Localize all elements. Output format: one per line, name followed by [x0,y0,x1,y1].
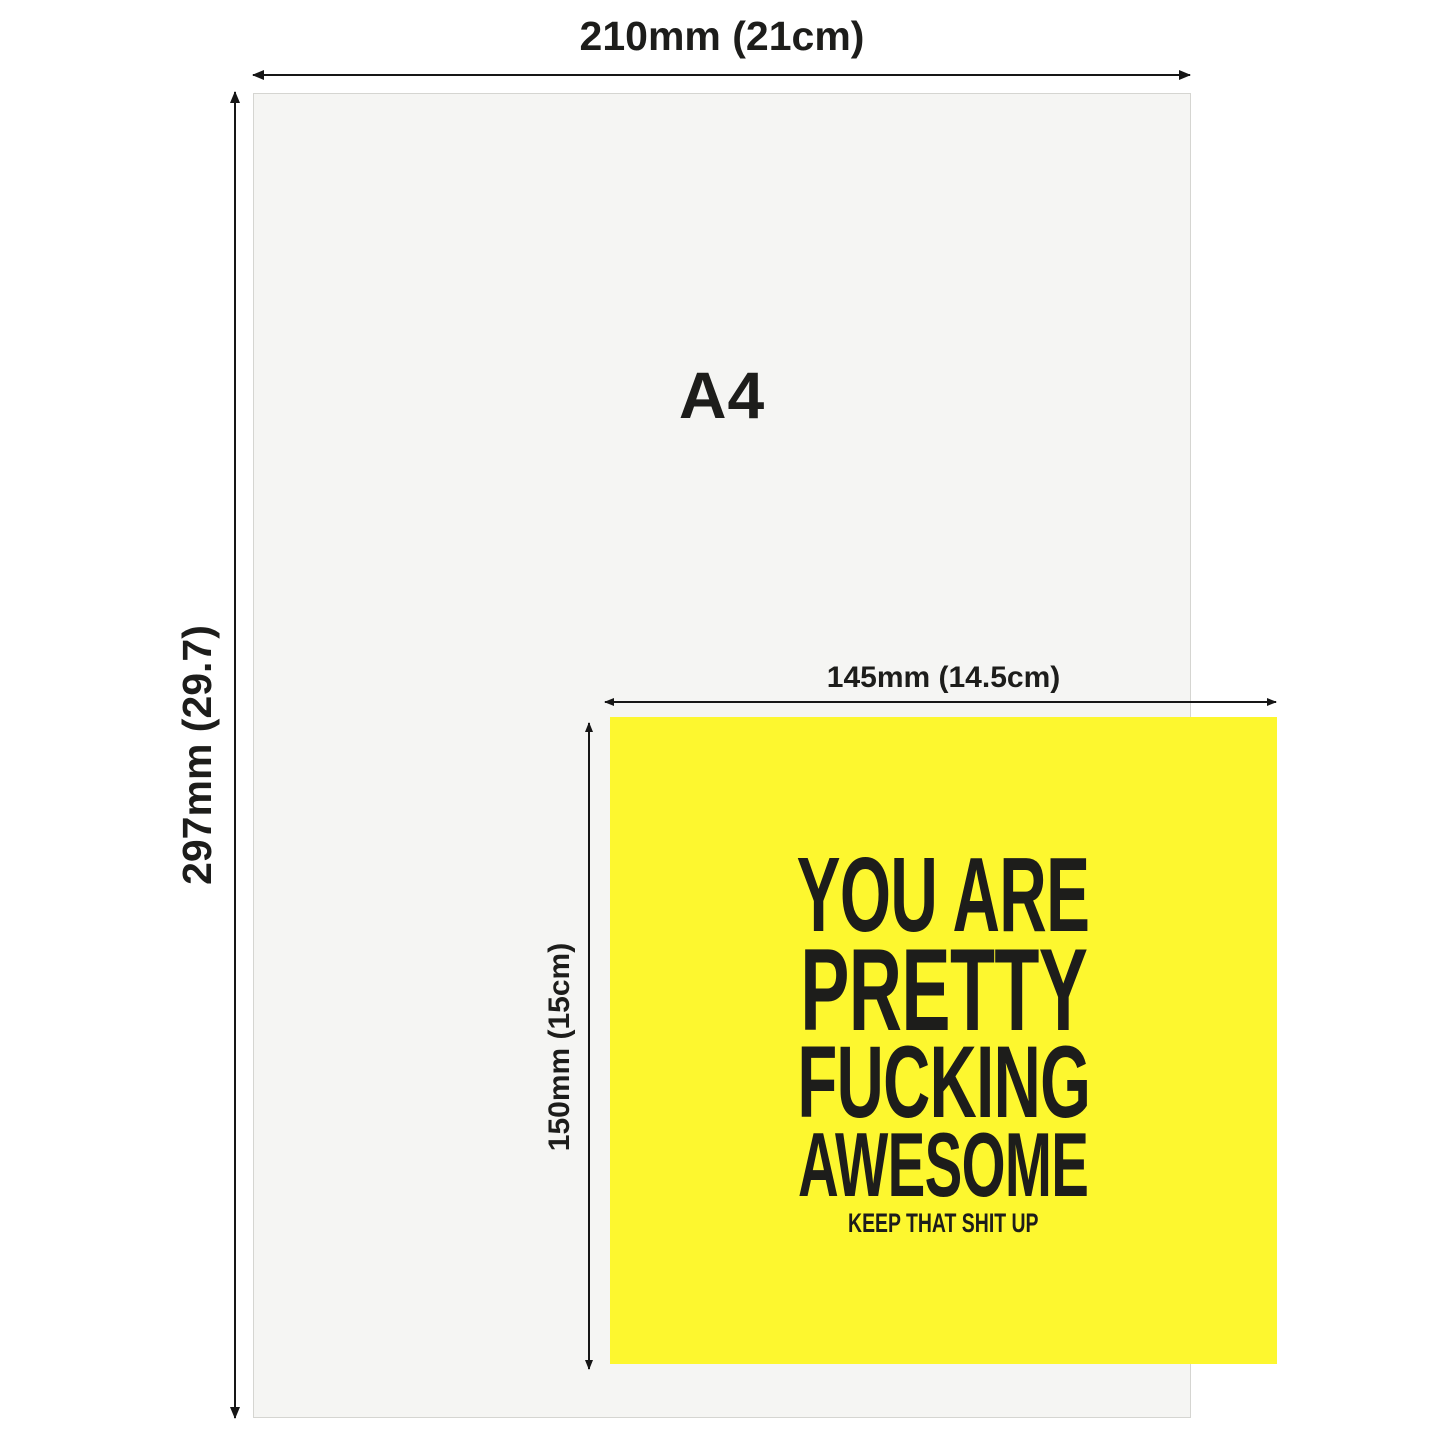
card-width-dimension-arrow [605,701,1276,703]
a4-width-label: 210mm (21cm) [253,12,1191,60]
a4-height-label: 297mm (29.7) [172,505,222,1005]
card-height-dimension-arrow [588,723,590,1369]
card-height-label: 150mm (15cm) [540,847,580,1247]
card-tagline: KEEP THAT SHIT UP [610,1205,1277,1241]
size-guide-diagram: A4 210mm (21cm) 297mm (29.7) 145mm (14.5… [0,0,1445,1445]
card-tagline-text: KEEP THAT SHIT UP [848,1208,1038,1239]
a4-sheet-label: A4 [253,342,1191,447]
headline-line-4: AWESOME [610,1127,1277,1205]
card-width-label: 145mm (14.5cm) [610,660,1277,696]
a4-width-dimension-arrow [253,74,1190,76]
a4-height-dimension-arrow [234,92,236,1418]
headline-line-4-text: AWESOME [798,1114,1088,1218]
greeting-card-text: YOU ARE PRETTY FUCKING AWESOME KEEP THAT… [610,849,1277,1241]
greeting-card: YOU ARE PRETTY FUCKING AWESOME KEEP THAT… [610,717,1277,1364]
